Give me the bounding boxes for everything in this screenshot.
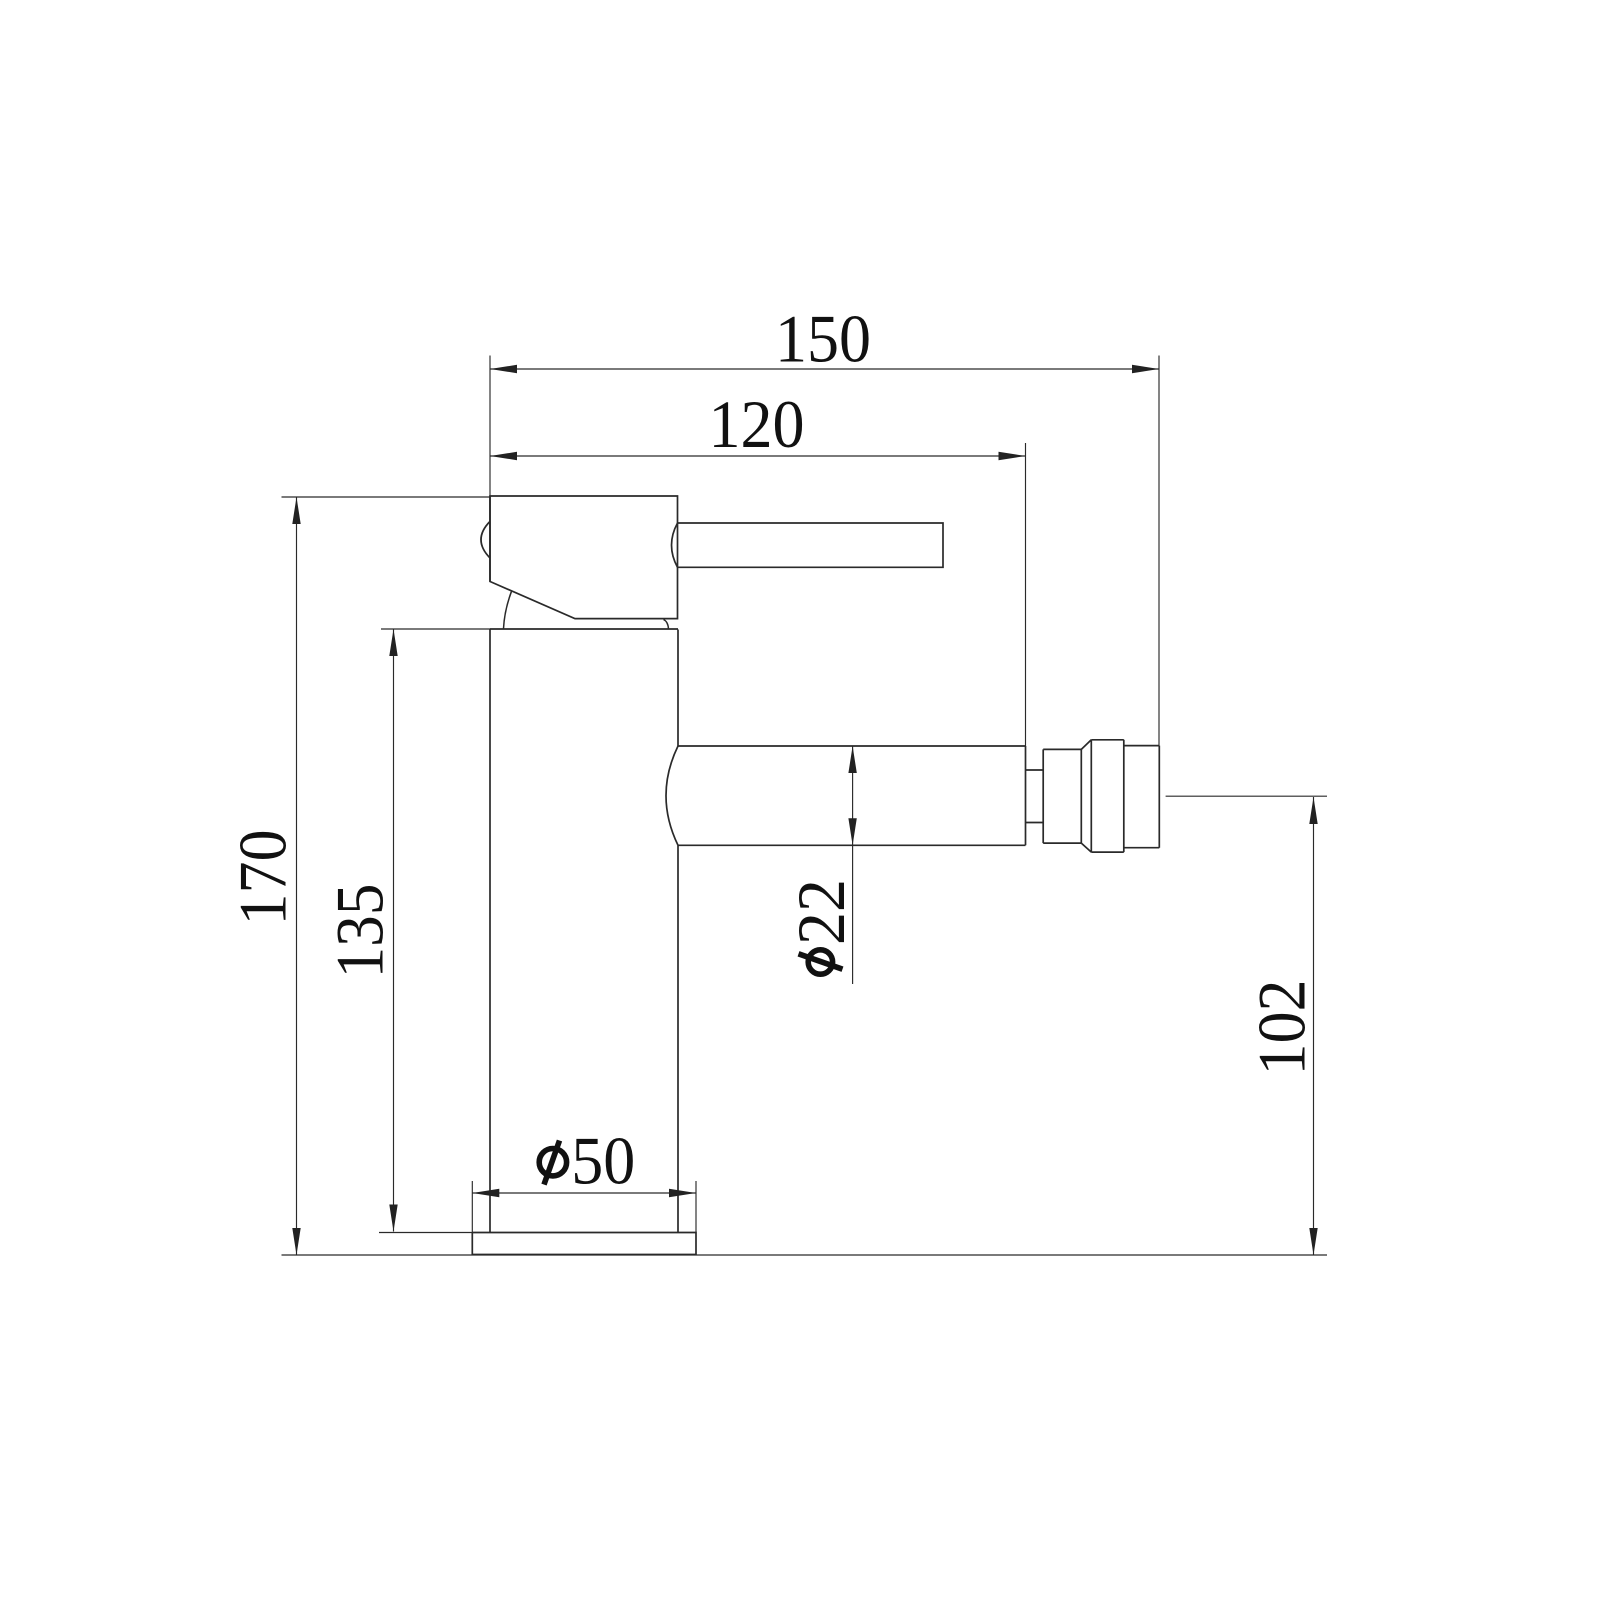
svg-text:50: 50 bbox=[571, 1123, 635, 1199]
svg-text:22: 22 bbox=[783, 879, 859, 945]
svg-text:135: 135 bbox=[322, 884, 398, 979]
svg-text:170: 170 bbox=[225, 830, 301, 926]
svg-text:102: 102 bbox=[1244, 980, 1320, 1076]
svg-text:150: 150 bbox=[775, 301, 871, 377]
svg-text:120: 120 bbox=[709, 386, 805, 462]
